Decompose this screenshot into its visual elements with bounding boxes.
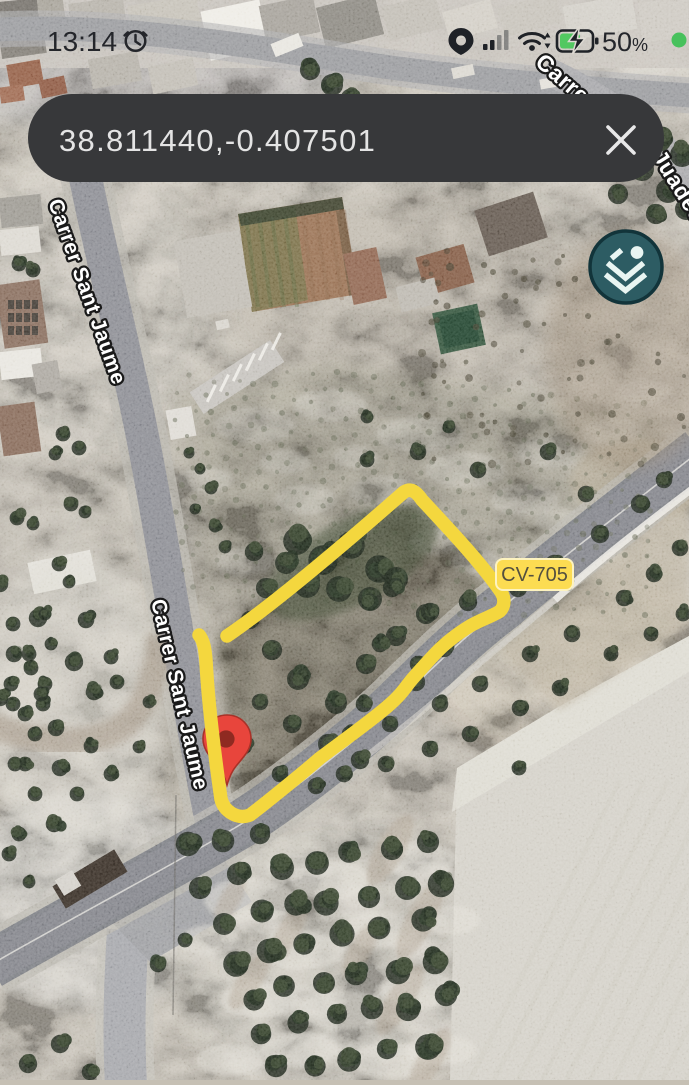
svg-text:CV-705: CV-705: [501, 564, 568, 586]
svg-text:13:14: 13:14: [47, 26, 117, 57]
svg-text:38.811440,-0.407501: 38.811440,-0.407501: [59, 123, 376, 158]
